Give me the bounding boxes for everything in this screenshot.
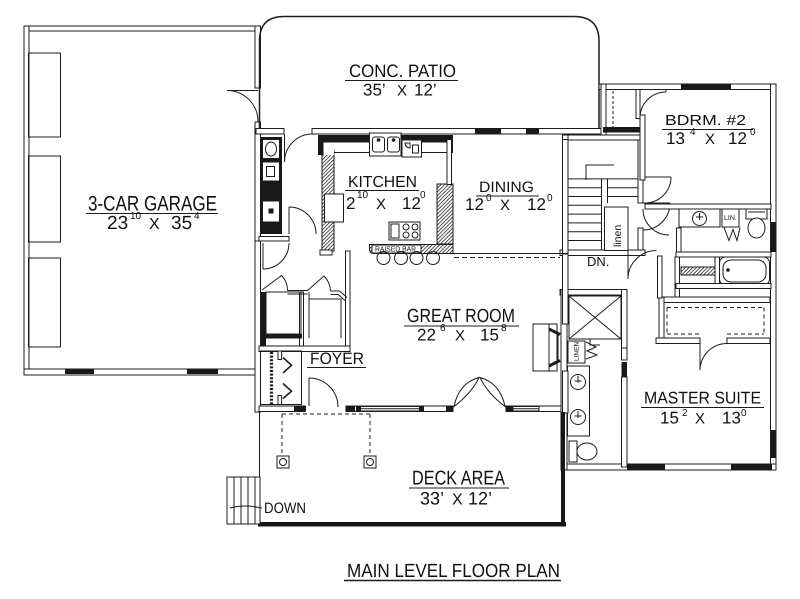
svg-text:13: 13 [666,129,685,148]
svg-text:0: 0 [420,190,426,201]
svg-text:6: 6 [440,323,446,334]
svg-text:2: 2 [682,408,688,419]
svg-text:MASTER SUITE: MASTER SUITE [644,389,761,408]
svg-text:DN.: DN. [587,254,609,269]
svg-text:22: 22 [417,326,436,345]
svg-text:35’: 35’ [363,81,386,100]
svg-text:15: 15 [480,326,499,345]
svg-text:35: 35 [171,213,192,234]
svg-text:12: 12 [465,195,484,214]
svg-text:0: 0 [486,193,492,204]
svg-text:12: 12 [402,194,421,213]
svg-text:BDRM. #2: BDRM. #2 [665,113,746,129]
svg-text:12: 12 [527,195,546,214]
svg-text:13: 13 [722,409,741,428]
svg-text:0: 0 [547,193,553,204]
svg-text:10: 10 [130,211,142,222]
svg-text:GREAT ROOM: GREAT ROOM [407,306,515,327]
svg-text:X: X [455,328,465,345]
svg-text:12’: 12’ [468,489,492,509]
svg-text:0: 0 [750,127,756,138]
svg-text:0: 0 [741,408,747,419]
svg-text:DOWN: DOWN [264,500,306,517]
svg-text:X: X [397,83,407,100]
svg-text:12’: 12’ [414,81,437,100]
svg-text:33’: 33’ [420,489,444,509]
svg-text:15: 15 [660,409,679,428]
svg-text:X: X [149,216,160,233]
svg-text:LINEN: LINEN [574,342,581,361]
svg-text:X: X [452,492,463,509]
svg-text:KITCHEN: KITCHEN [348,174,417,191]
svg-text:X: X [705,131,715,148]
svg-text:DECK AREA: DECK AREA [412,468,506,490]
svg-text:LIN.: LIN. [724,215,737,222]
svg-text:23: 23 [107,213,128,234]
svg-text:12: 12 [728,129,747,148]
svg-text:X: X [376,196,386,213]
svg-text:X: X [695,411,705,428]
svg-text:linen: linen [612,225,624,247]
svg-text:8: 8 [501,323,507,334]
svg-text:MAIN LEVEL FLOOR PLAN: MAIN LEVEL FLOOR PLAN [347,561,560,582]
svg-text:2: 2 [346,194,355,213]
svg-text:10: 10 [357,190,369,201]
svg-text:CONC. PATIO: CONC. PATIO [349,61,456,81]
svg-text:4: 4 [690,127,696,138]
svg-text:FOYER: FOYER [310,350,364,368]
svg-text:4: 4 [194,211,200,222]
svg-text:X: X [500,197,510,214]
